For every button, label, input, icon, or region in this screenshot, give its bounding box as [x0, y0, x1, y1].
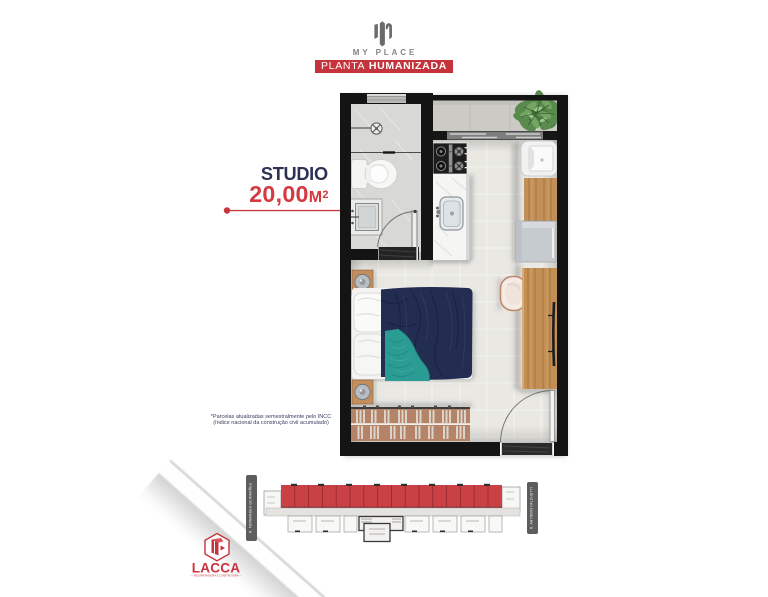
svg-text:— INCORPORADORA E CONSTRUTORA: — INCORPORADORA E CONSTRUTORA — [191, 575, 242, 578]
svg-text:R. FERNANDES GUIMARÃES: R. FERNANDES GUIMARÃES [248, 483, 253, 533]
svg-text:LACCA: LACCA [192, 561, 241, 576]
svg-text:R. ANTONIO FALCHETTI: R. ANTONIO FALCHETTI [530, 487, 534, 529]
